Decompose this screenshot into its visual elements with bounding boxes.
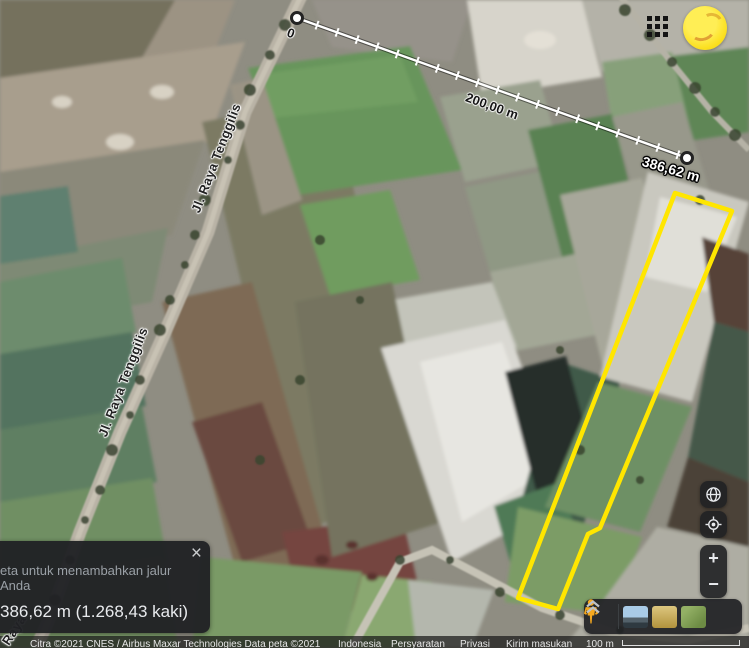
- measure-line[interactable]: [297, 18, 687, 158]
- imagery-credit: Citra ©2021 CNES / Airbus Maxar Technolo…: [30, 639, 320, 648]
- link-indonesia[interactable]: Indonesia: [338, 639, 381, 648]
- map-layer-thumbnail-2[interactable]: [652, 606, 677, 628]
- scale-label: 100 m: [586, 639, 614, 648]
- measure-info-panel: × eta untuk menambahkan jalur Anda 386,6…: [0, 541, 210, 633]
- measure-total-text: 386,62 m (1.268,43 kaki): [0, 602, 200, 622]
- measure-end-point[interactable]: [682, 153, 693, 164]
- measure-start-point[interactable]: [292, 13, 303, 24]
- divider: [618, 604, 619, 629]
- my-location-button[interactable]: [700, 511, 727, 538]
- measure-hint-text: eta untuk menambahkan jalur Anda: [0, 563, 200, 593]
- double-chevron-up-glyph: [584, 599, 602, 615]
- link-persyaratan[interactable]: Persyaratan: [391, 639, 445, 648]
- zoom-in-button[interactable]: +: [700, 545, 727, 571]
- globe-view-button[interactable]: [700, 481, 727, 508]
- globe-icon: [705, 486, 722, 503]
- scale-bar: [622, 640, 740, 646]
- map-layer-thumbnail-1[interactable]: [623, 606, 648, 628]
- map-layer-thumbnail-3[interactable]: [681, 606, 706, 628]
- map-viewport[interactable]: Jl. Raya Tenggilis Jl. Raya Tenggilis Ra…: [0, 0, 749, 648]
- zoom-control: + −: [700, 545, 727, 598]
- link-kirim-masukan[interactable]: Kirim masukan: [506, 639, 572, 648]
- layers-bar: [584, 599, 742, 634]
- close-icon[interactable]: ×: [191, 544, 202, 563]
- link-privasi[interactable]: Privasi: [460, 639, 490, 648]
- my-location-icon: [705, 516, 722, 533]
- zoom-out-button[interactable]: −: [700, 571, 727, 597]
